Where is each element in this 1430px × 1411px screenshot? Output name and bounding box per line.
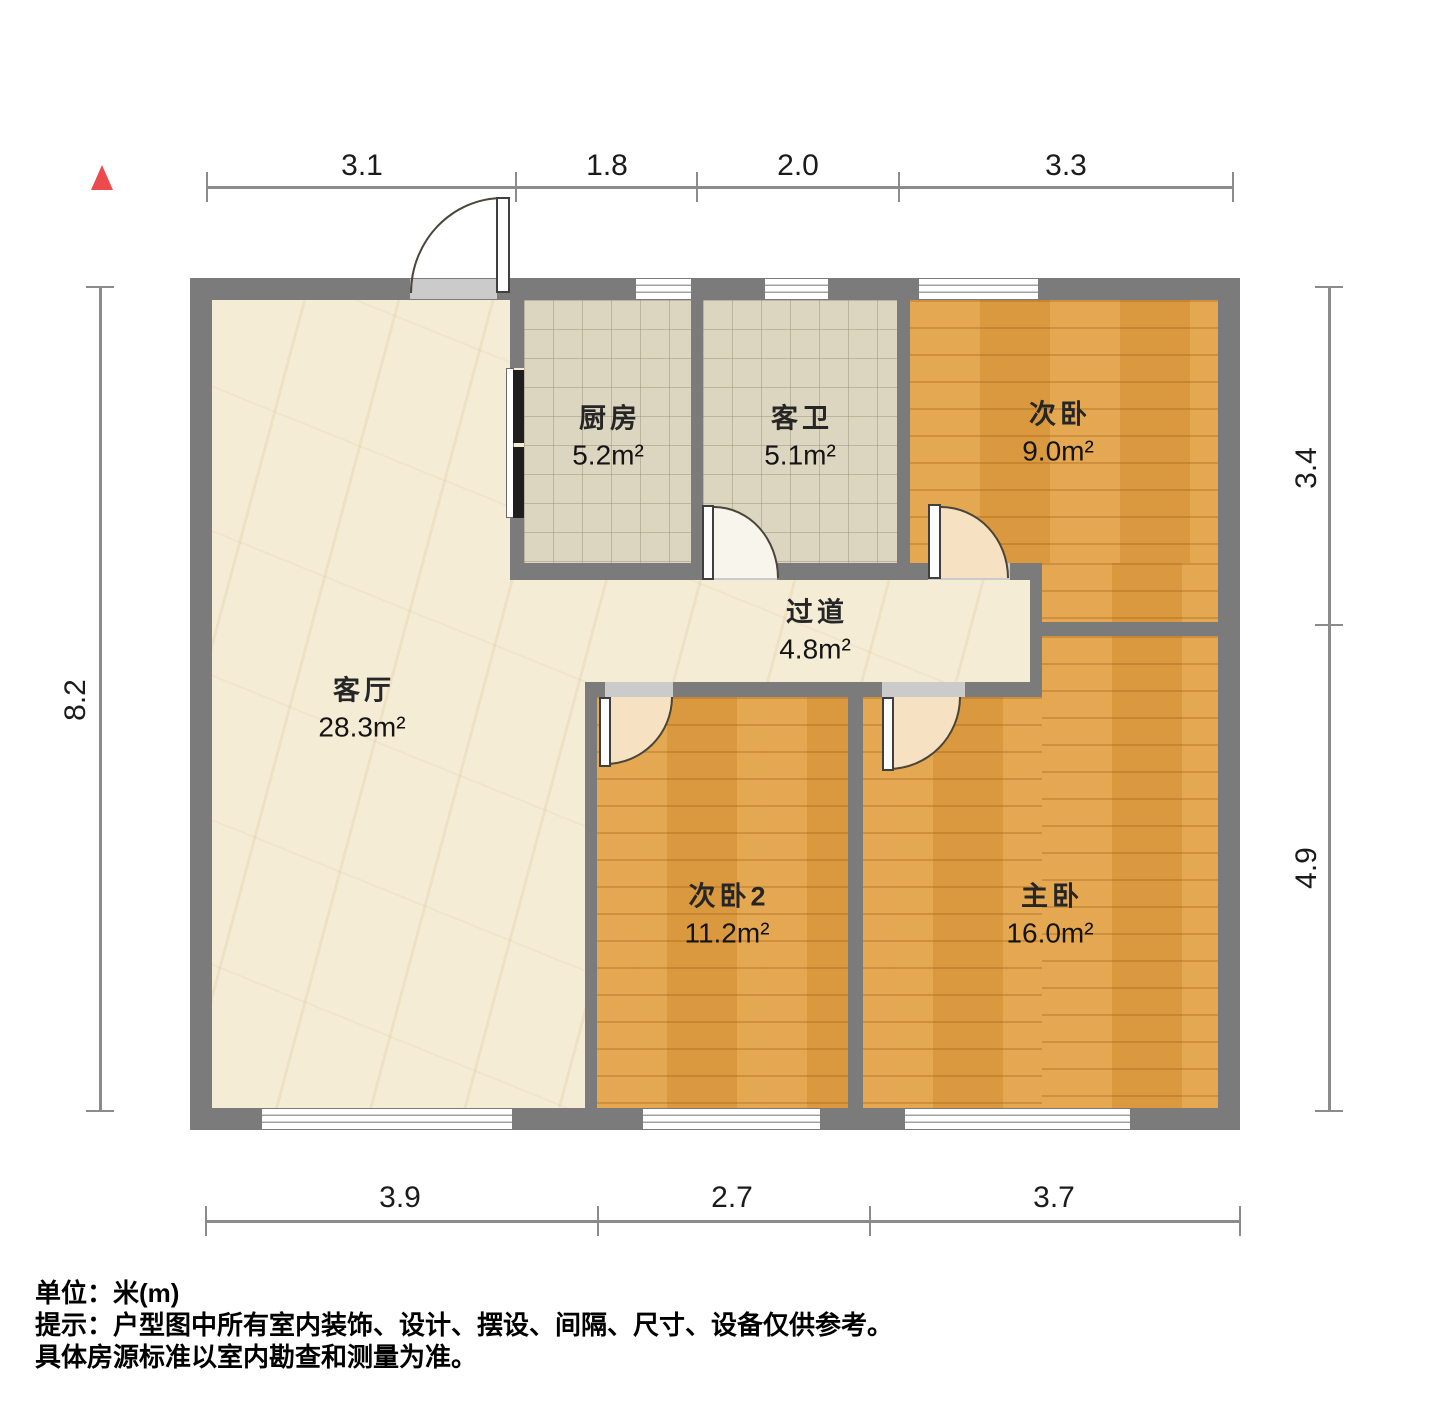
bedroom2-door-leaf [599,697,611,767]
dim-line-top [207,186,1233,189]
room-label-living: 客厅 28.3m² [318,669,405,744]
dim-tick [1239,1206,1241,1236]
wall-kitchen-left-lower [510,518,524,565]
room-area: 5.1m² [764,440,836,472]
room-label-kitchen: 厨房 5.2m² [572,397,644,472]
room-area: 28.3m² [318,712,405,744]
bedroom-top-floor-ext [1042,563,1218,622]
wall-outer-top [190,278,1240,300]
dim-tick [206,172,208,202]
room-name: 次卧 [1022,393,1094,432]
dim-tick [1315,286,1343,288]
dim-line-bottom [206,1220,1240,1223]
wall-bedroom-master [1042,622,1218,636]
master-door-opening [882,682,965,697]
wall-outer-right [1218,278,1240,1130]
room-area: 5.2m² [572,440,644,472]
master-floor [1042,636,1218,1108]
kitchen-sliding-door-track-lower [513,447,524,518]
room-area: 11.2m² [684,918,769,950]
dim-label-top-3: 2.0 [777,149,819,183]
dim-label-top-4: 3.3 [1045,149,1087,183]
master-door-leaf [882,697,894,771]
wall-outer-left [190,278,212,1130]
room-name: 次卧2 [684,875,769,914]
bedroom2-window [643,1109,820,1129]
room-label-master: 主卧 16.0m² [1006,875,1093,950]
room-name: 客卫 [764,397,836,436]
entrance-door-swing [410,197,503,293]
bathroom-door-leaf [702,505,714,580]
dim-tick [86,286,114,288]
dim-tick [205,1206,207,1236]
room-area: 16.0m² [1006,918,1093,950]
room-name: 客厅 [318,669,405,708]
bedroom-top-window [919,279,1038,299]
bathroom-window [765,279,828,299]
dim-tick [597,1206,599,1236]
room-name: 主卧 [1006,875,1093,914]
floor-plan-canvas: 厨房 5.2m² 客卫 5.1m² 次卧 9.0m² 过道 4.8m² 客厅 2… [0,0,1430,1411]
room-label-hallway: 过道 4.8m² [779,591,851,666]
room-area: 9.0m² [1022,436,1094,468]
dim-tick [1232,172,1234,202]
dim-tick [1315,624,1343,626]
living-window [262,1109,512,1129]
dim-label-right-1: 3.4 [1290,447,1324,489]
wall-kitchen-left-upper [510,300,524,368]
dim-label-bottom-1: 3.9 [379,1181,421,1215]
dim-label-top-2: 1.8 [586,149,628,183]
wall-bedroom2-master [848,682,863,1108]
wall-bathroom-bedroom [897,300,910,563]
dim-tick [515,172,517,202]
room-name: 厨房 [572,397,644,436]
dim-line-right [1328,287,1331,1112]
bedroom-top-door-leaf [928,504,941,579]
dim-label-bottom-3: 3.7 [1033,1181,1075,1215]
room-label-bedroom2: 次卧2 11.2m² [684,875,769,950]
entrance-door-leaf [496,197,510,293]
dim-tick [898,172,900,202]
dim-label-top-1: 3.1 [341,149,383,183]
north-arrow-icon [91,165,113,190]
dim-label-left: 8.2 [59,679,93,721]
room-area: 4.8m² [779,634,851,666]
dim-label-right-2: 4.9 [1290,847,1324,889]
dim-tick [1315,1110,1343,1112]
room-label-bedroom-top: 次卧 9.0m² [1022,393,1094,468]
wall-living-bedroom2 [585,682,597,1108]
room-label-bathroom: 客卫 5.1m² [764,397,836,472]
room-name: 过道 [779,591,851,630]
dim-label-bottom-2: 2.7 [711,1181,753,1215]
dim-line-left [99,287,102,1112]
disclaimer-line2: 具体房源标准以室内勘查和测量为准。 [35,1337,477,1374]
master-window [905,1109,1130,1129]
wall-hall-right [1030,563,1042,697]
dim-tick [86,1110,114,1112]
kitchen-window [636,279,691,299]
dim-tick [696,172,698,202]
bedroom2-door-opening [605,682,673,697]
dim-tick [869,1206,871,1236]
kitchen-sliding-door-track-upper [513,370,524,443]
